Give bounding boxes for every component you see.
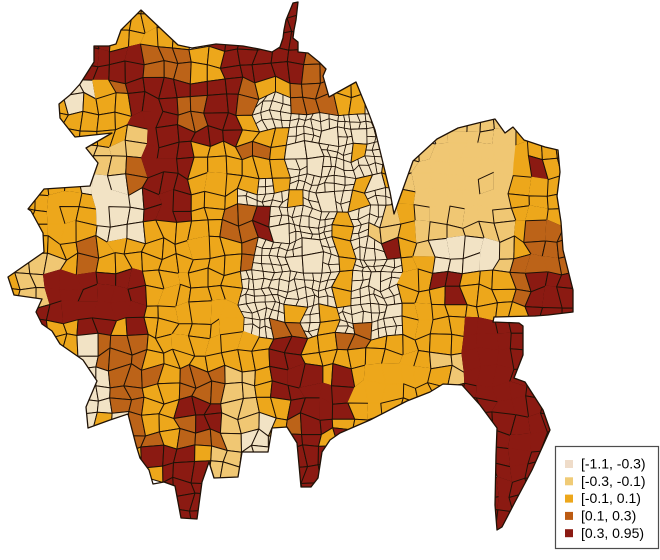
svg-text:[-0.3, -0.1): [-0.3, -0.1) bbox=[581, 473, 646, 489]
svg-text:[0.3, 0.95): [0.3, 0.95) bbox=[581, 525, 644, 541]
svg-text:[-1.1, -0.3): [-1.1, -0.3) bbox=[581, 456, 646, 472]
svg-text:[0.1, 0.3): [0.1, 0.3) bbox=[581, 508, 636, 524]
svg-text:[-0.1, 0.1): [-0.1, 0.1) bbox=[581, 490, 641, 506]
